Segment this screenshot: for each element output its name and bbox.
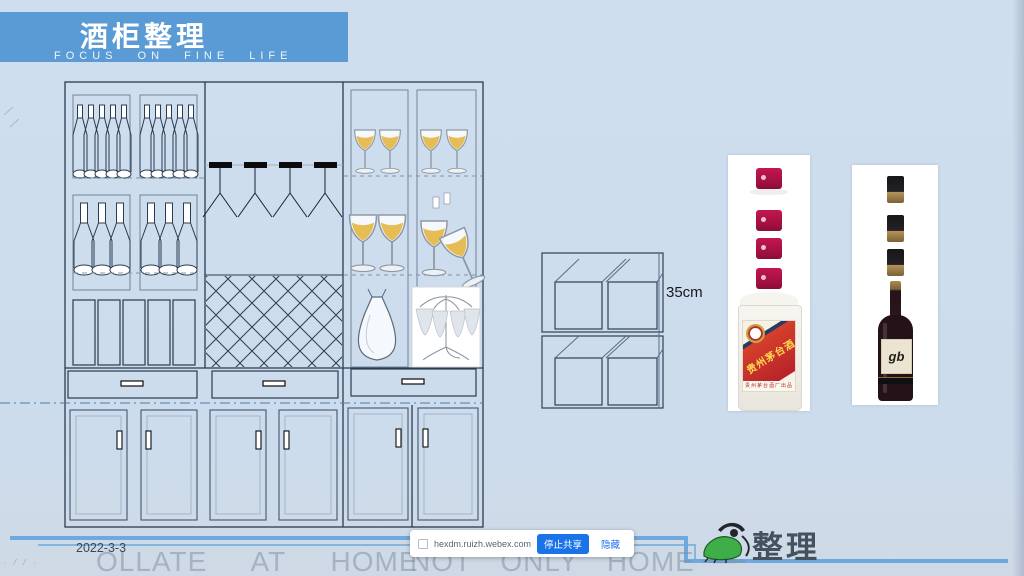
moutai-logo-icon [746, 324, 765, 343]
diamond-wine-rack [206, 276, 342, 367]
cabinet-door [210, 410, 266, 520]
door-handle [284, 431, 289, 449]
wine-bottle-image: gb [852, 165, 938, 405]
moutai-cap [756, 238, 782, 259]
door-row [70, 408, 478, 520]
wine-cork-cap [887, 176, 904, 203]
page-title: 酒柜整理 [80, 15, 208, 55]
cabinet-door [418, 408, 478, 520]
wine-cork-cap [887, 249, 904, 276]
wine-label-band [878, 377, 913, 384]
moutai-cap-flange [750, 189, 788, 195]
moutai-bottle-image: 贵州茅台酒 贵州茅台酒厂出品 [728, 155, 810, 411]
vertical-divider-slots [73, 300, 195, 365]
drawer-handle [121, 381, 143, 386]
share-message: hexdm.ruizh.webex.com 正在共享你的屏幕。 [434, 537, 531, 550]
cabinet-door [141, 410, 197, 520]
drawer-handle [263, 381, 285, 386]
wine-cabinet-drawing [0, 75, 492, 535]
door-handle [396, 429, 401, 447]
dimension-label: 35cm [666, 284, 703, 301]
bottle-shelf-section [73, 95, 205, 365]
brand-logo-icon [696, 518, 756, 564]
watermark-left: OLLATE AT HOME [96, 546, 419, 576]
wine-cork-cap [887, 215, 904, 242]
moutai-cap [756, 268, 782, 289]
door-handle [256, 431, 261, 449]
slide: 酒柜整理 FOCUS ON FINE LIFE [0, 0, 1024, 576]
corner-marks: ∙ ⁄ ⁄ ∙ [4, 558, 39, 567]
stop-sharing-button[interactable]: 停止共享 [537, 534, 589, 554]
moutai-cap [756, 168, 782, 189]
share-icon [418, 539, 428, 549]
glass-display-section [344, 90, 487, 367]
moutai-cap [756, 210, 782, 231]
hide-button[interactable]: 隐藏 [595, 536, 626, 552]
cabinet-door [70, 410, 127, 520]
glass-stand-photo [412, 287, 480, 367]
door-handle [423, 429, 428, 447]
drawer-handle [402, 379, 424, 384]
door-handle [117, 431, 122, 449]
moutai-label: 贵州茅台酒 贵州茅台酒厂出品 [742, 320, 796, 392]
cabinet-door [279, 410, 337, 520]
cabinet-door [348, 408, 408, 520]
stemware-rack-section [203, 162, 343, 367]
stack-box-diagram [535, 250, 670, 412]
screen-share-bar: hexdm.ruizh.webex.com 正在共享你的屏幕。 停止共享 隐藏 [410, 530, 634, 557]
drawer-row [68, 369, 476, 398]
wine-bottle-neck [890, 281, 901, 319]
decanter-drawing [358, 289, 395, 360]
header-subtitle: FOCUS ON FINE LIFE [54, 50, 292, 62]
brand-logo-text: 整理 [752, 522, 820, 567]
right-edge-shadow [1012, 0, 1024, 576]
wine-bottle-body: gb [878, 315, 913, 401]
corner-arrow-marks [4, 107, 19, 127]
moutai-bottle-body: 贵州茅台酒 贵州茅台酒厂出品 [738, 305, 802, 411]
wine-label: gb [881, 339, 912, 374]
door-handle [146, 431, 151, 449]
